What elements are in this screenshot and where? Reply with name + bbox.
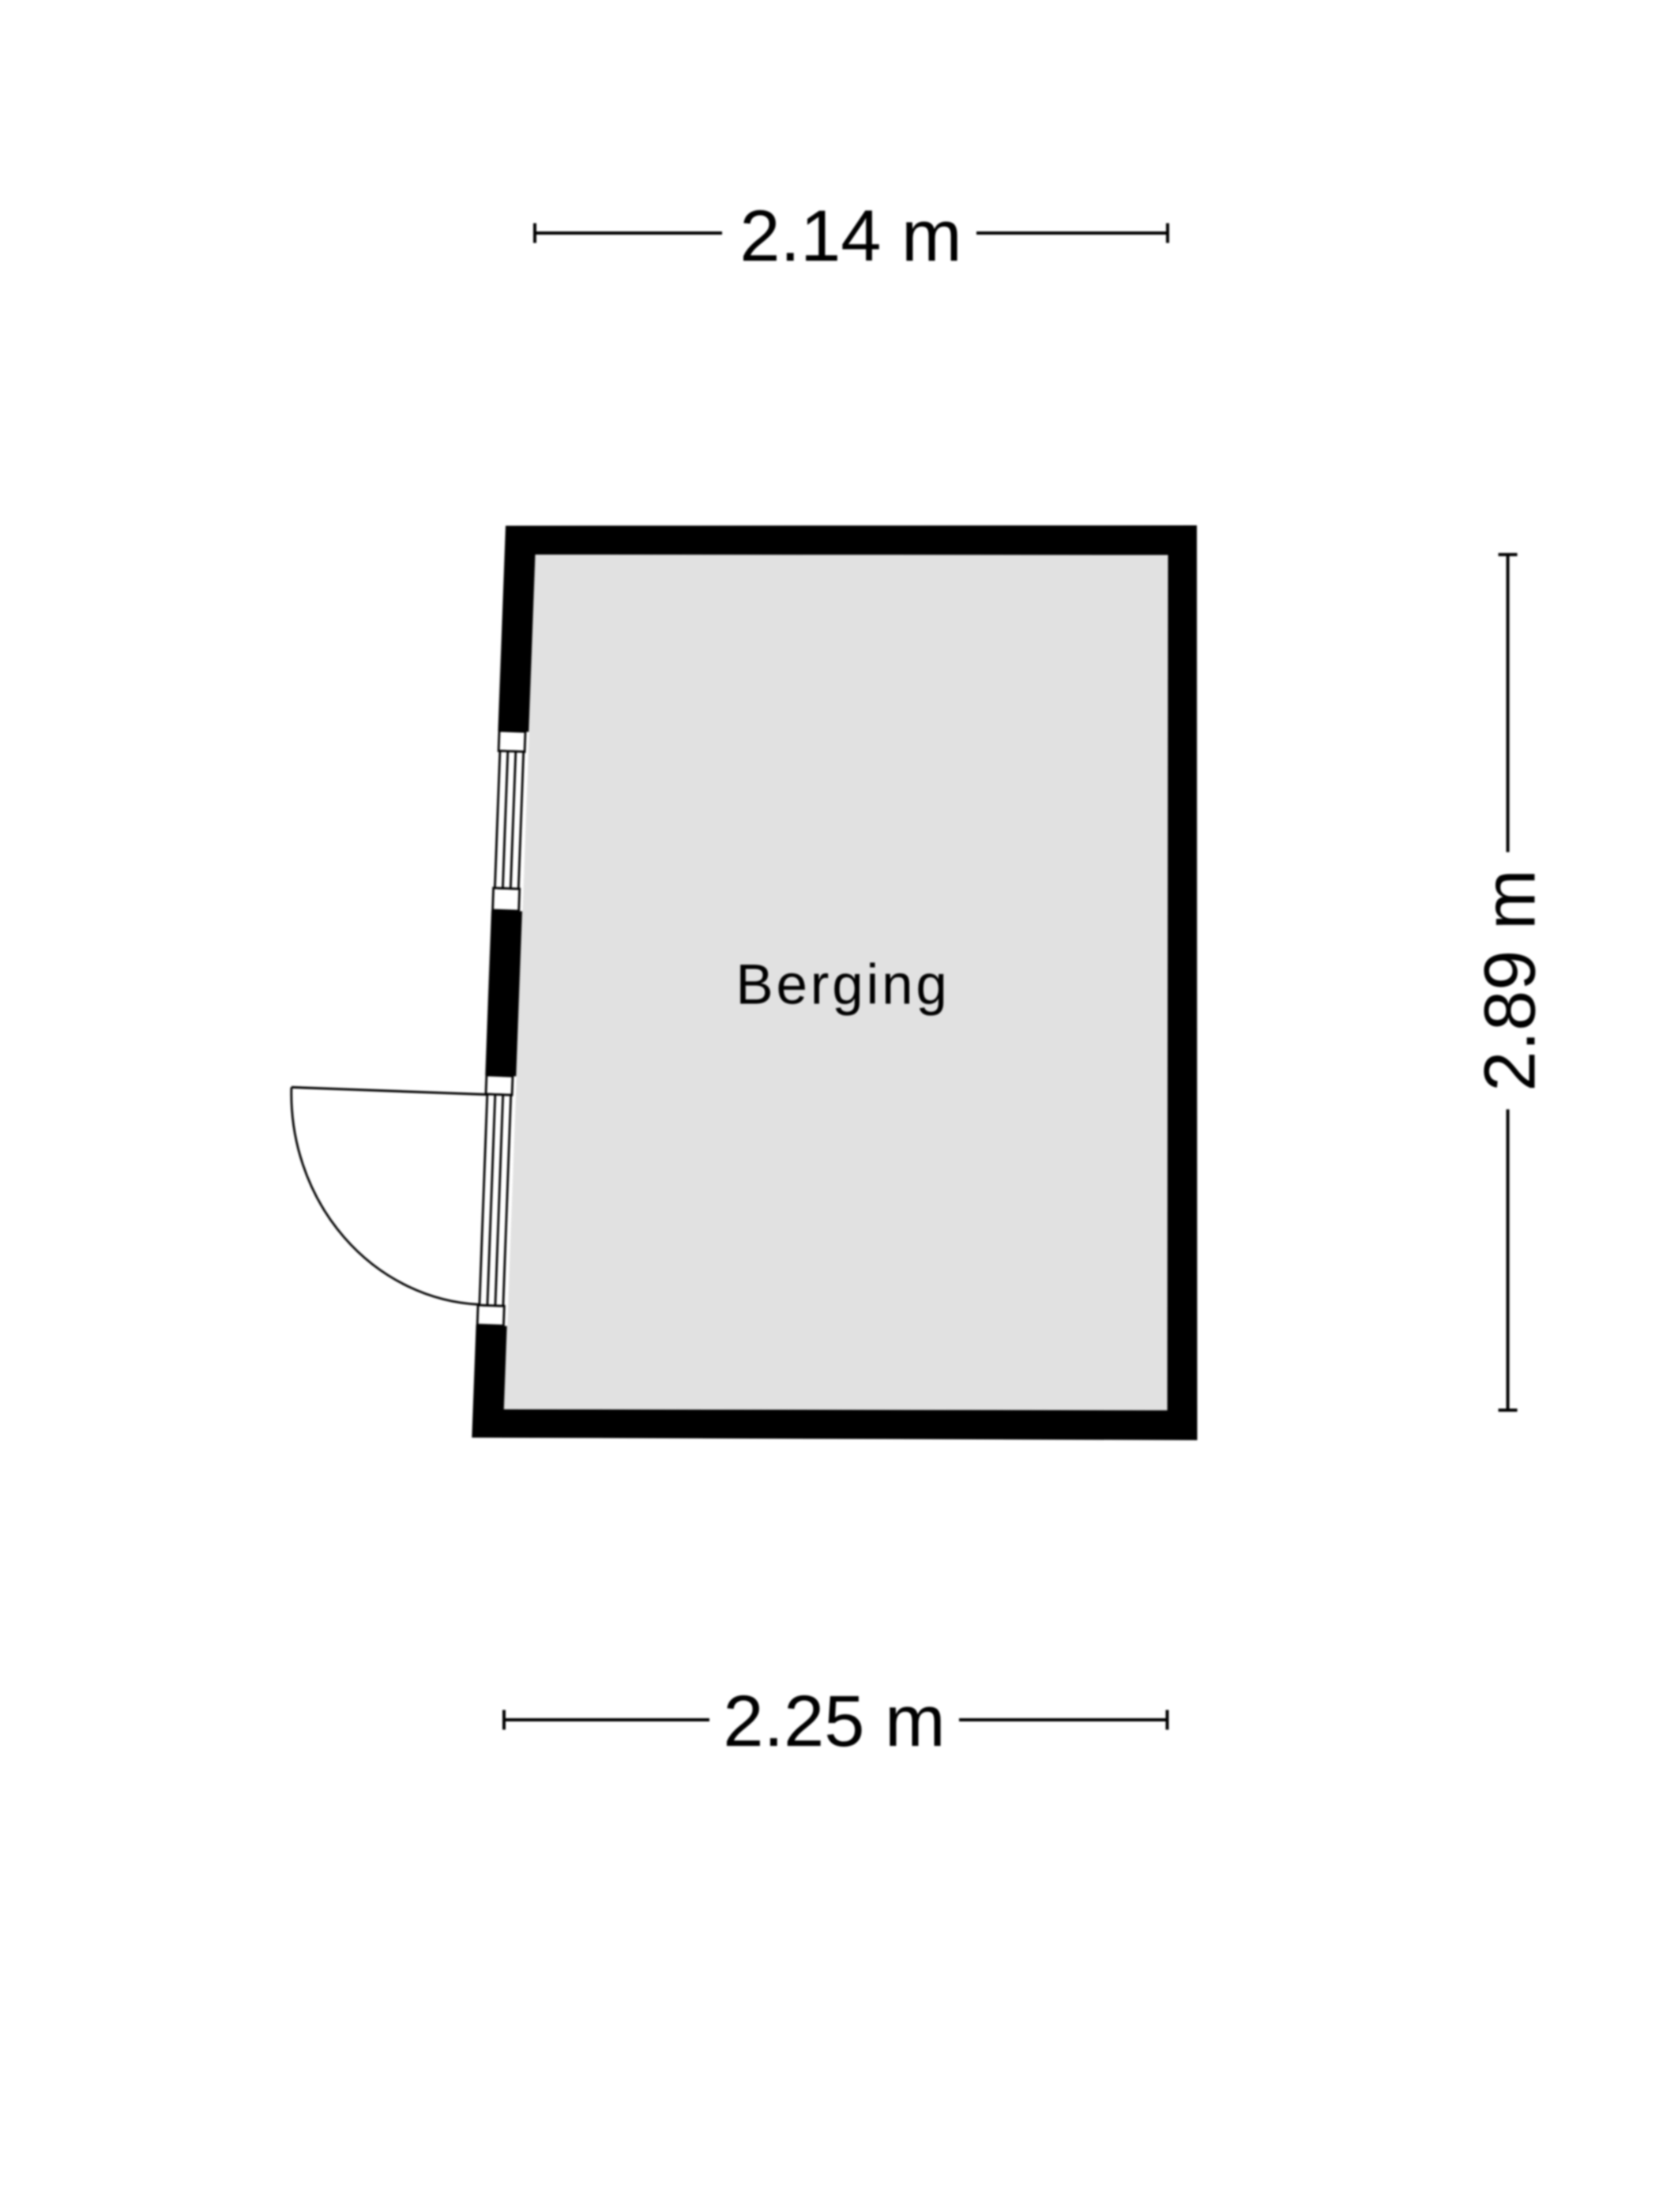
svg-text:2.14 m: 2.14 m <box>739 196 961 276</box>
svg-text:2.25 m: 2.25 m <box>723 1681 945 1762</box>
svg-text:Berging: Berging <box>735 954 950 1017</box>
svg-text:2.89 m: 2.89 m <box>1470 869 1551 1091</box>
